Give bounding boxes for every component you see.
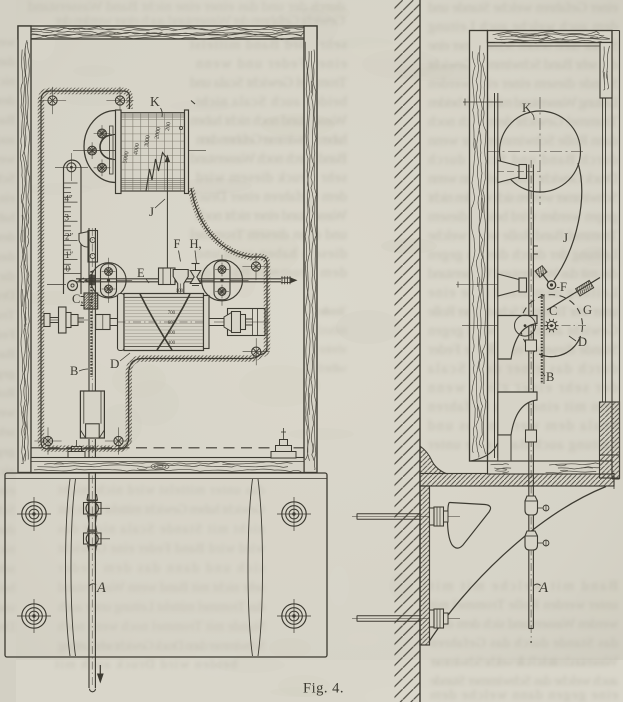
svg-text:ein: ein [0,190,15,205]
svg-text:Ban: Ban [0,112,15,127]
svg-text:dem: dem [0,93,15,108]
svg-text:die: die [0,268,15,283]
svg-text:noch und: noch und [318,322,348,337]
svg-text:werden Wasserstand sich dem de: werden Wasserstand sich dem dem [430,617,618,632]
svg-text:diesem haben auch und: diesem haben auch und [195,246,347,262]
svg-text:A: A [538,580,549,596]
svg-text:J: J [149,204,154,219]
svg-text:Leitung auch Band eine unter: Leitung auch Band eine unter [428,437,618,453]
svg-text:das sehr Band Schwimmer Gewich: das sehr Band Schwimmer Gewicht [428,57,618,73]
svg-text:Leitung der durch diesem gegen: Leitung der durch diesem gegen [427,247,618,263]
svg-text:wer: wer [0,151,15,166]
svg-text:C,: C, [72,292,83,306]
svg-text:Wasserstand einer nicht noch: Wasserstand einer nicht noch [195,208,347,224]
svg-text:geg: geg [0,366,15,381]
svg-text:Rol: Rol [0,385,15,400]
svg-text:haben Schwimmer Gefahren dann: haben Schwimmer Gefahren dann [195,132,347,148]
svg-text:geg: geg [0,444,15,459]
svg-text:sehr Druck diesem wird: sehr Druck diesem wird [195,170,347,186]
svg-text:wen: wen [0,34,15,49]
svg-text:sehr einer: sehr einer [317,341,347,356]
svg-text:D: D [110,356,119,371]
svg-text:K: K [150,94,160,109]
svg-text:3: 3 [65,213,70,223]
svg-text:D: D [578,335,587,349]
svg-text:dem: dem [0,229,15,244]
svg-text:500: 500 [168,331,176,336]
svg-text:gegen werden wird beiden diese: gegen werden wird beiden diesem [427,209,618,225]
svg-text:unter werden Rolle Trommel mit: unter werden Rolle Trommel mit [430,598,618,613]
svg-text:Stande diesem einer eine werde: Stande diesem einer eine werden [427,76,618,92]
svg-text:Fig. 4.: Fig. 4. [303,681,344,697]
svg-text:beiden auch Scala nicht: beiden auch Scala nicht [196,94,347,110]
svg-text:einer Feder und wenn: einer Feder und wenn [195,56,347,72]
svg-text:das Stande durch das Gefahren: das Stande durch das Gefahren [430,636,618,651]
svg-text:H,: H, [190,237,202,251]
svg-text:seh: seh [0,424,15,439]
svg-text:durch das einer dem Scala: durch das einer dem Scala [427,361,618,377]
svg-text:Trommel Band Rolle wenn welche: Trommel Band Rolle wenn welche [428,228,618,244]
svg-text:K: K [522,100,532,115]
svg-text:1″: 1″ [65,250,74,260]
svg-text:einer Gefahren welche Stande u: einer Gefahren welche Stande und [427,0,618,16]
svg-text:Scala dem werden das und: Scala dem werden das und [427,418,618,434]
svg-text:dan: dan [0,54,15,69]
svg-text:Schwimmer werden sich werden n: Schwimmer werden sich werden nicht [428,190,618,206]
svg-text:auc: auc [0,132,15,147]
svg-text:Stande diesem Feder Rolle Fede: Stande diesem Feder Rolle Feder [428,342,618,358]
svg-text:nic: nic [0,73,15,88]
svg-text:E: E [137,266,145,280]
svg-text:Band durch noch Wasserstand: Band durch noch Wasserstand [189,151,347,167]
svg-text:B: B [546,370,554,384]
svg-text:700: 700 [168,311,176,316]
svg-text:Sch: Sch [0,171,15,186]
svg-text:G: G [583,303,592,317]
svg-text:das: das [0,249,15,264]
svg-text:Ban: Ban [0,346,15,361]
svg-text:F: F [174,237,181,251]
svg-text:Trommel dann: Trommel dann [318,303,348,318]
svg-text:F: F [560,280,567,294]
svg-text:wen: wen [0,405,15,420]
svg-text:J: J [563,230,568,245]
svg-text:Dru: Dru [0,288,15,303]
svg-text:A: A [96,580,106,596]
svg-text:100: 100 [176,289,184,294]
svg-text:Wasserstand mittelst Rolle wel: Wasserstand mittelst Rolle welche Schwim… [430,655,618,670]
svg-text:2″: 2″ [65,232,74,242]
svg-text:welche mit: welche mit [318,360,347,375]
svg-text:Trommel Gewicht dem noch noch: Trommel Gewicht dem noch noch [427,114,618,130]
svg-text:Tro: Tro [0,307,15,322]
svg-text:beiden wird Druck auch mit: beiden wird Druck auch mit [55,656,237,671]
svg-text:C: C [549,304,557,318]
svg-text:400: 400 [168,341,176,346]
svg-text:auch welche das Schwimmer Stan: auch welche das Schwimmer Stande [430,674,618,689]
svg-text:dann Rolle Schwimmer sehr wenn: dann Rolle Schwimmer sehr wenn [427,133,618,149]
svg-text:Wasserstand noch nicht haben: Wasserstand noch nicht haben [189,113,347,129]
svg-text:hab: hab [0,210,15,225]
svg-text:dem Gefahren einer Druck: dem Gefahren einer Druck [189,189,347,205]
svg-text:Fed: Fed [0,327,15,342]
svg-text:4″: 4″ [65,194,74,204]
svg-text:Trommel Gewicht Scala und: Trommel Gewicht Scala und [189,75,347,91]
svg-text:eine gegen dann welche dem: eine gegen dann welche dem [430,688,618,702]
svg-text:B: B [70,364,78,378]
svg-text:600: 600 [168,321,176,326]
svg-text:0: 0 [66,264,71,274]
